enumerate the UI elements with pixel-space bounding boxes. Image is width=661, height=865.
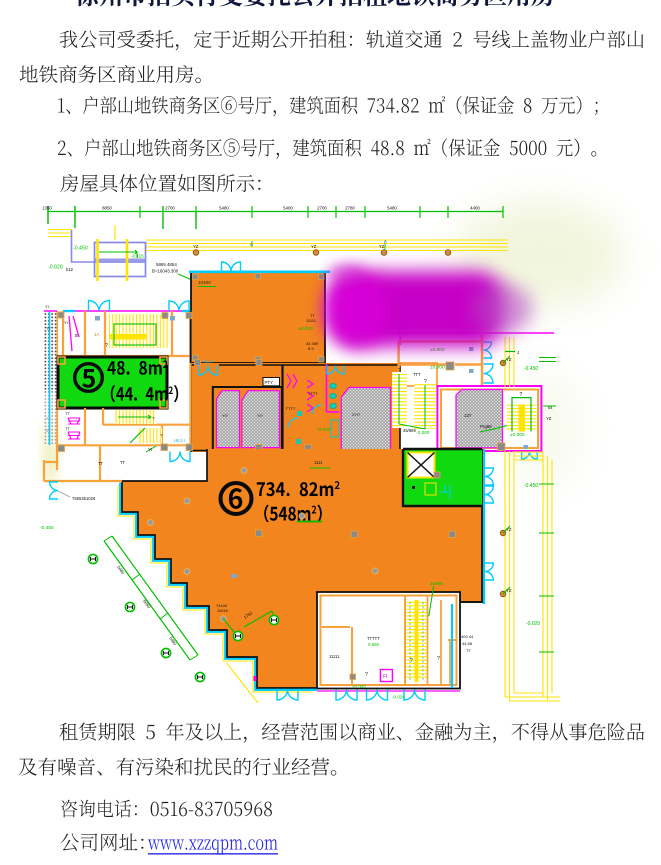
svg-text:45966: 45966: [430, 581, 443, 586]
svg-text:11111: 11111: [329, 654, 340, 659]
svg-text:5480: 5480: [116, 565, 126, 576]
svg-text:TT: TT: [466, 648, 471, 653]
svg-text:A: A: [384, 239, 387, 244]
svg-text:YI?: YI?: [222, 413, 229, 418]
svg-text:4400: 4400: [470, 206, 480, 211]
svg-text:8 9: 8 9: [308, 346, 314, 351]
svg-text:-0.450: -0.450: [524, 483, 538, 489]
svg-text:7555451026: 7555451026: [72, 496, 96, 501]
svg-text:±0.000: ±0.000: [298, 326, 313, 332]
svg-text:YI: YI: [64, 320, 68, 325]
svg-text:13?: 13?: [464, 413, 472, 418]
svg-text:2780: 2780: [345, 206, 355, 211]
svg-text:8850: 8850: [102, 206, 112, 211]
svg-text:11111: 11111: [306, 318, 317, 323]
svg-text:Prg88: Prg88: [480, 424, 492, 429]
svg-text:-0.115: -0.115: [131, 254, 144, 259]
svg-text:TTTTT: TTTTT: [367, 636, 380, 641]
svg-text:44 88: 44 88: [462, 641, 473, 646]
svg-text:1111: 1111: [314, 460, 323, 465]
svg-text:A: A: [250, 242, 253, 247]
svg-text:J: J: [517, 350, 519, 355]
svg-text:1A: 1A: [94, 332, 101, 337]
svg-text:-0.450: -0.450: [40, 525, 54, 531]
svg-text:?: ?: [365, 672, 368, 678]
svg-text:b12: b12: [66, 267, 74, 272]
svg-text:TT: TT: [46, 326, 51, 331]
svg-text:TTTT: TTTT: [308, 391, 318, 396]
svg-text:HEJ-I: HEJ-I: [174, 438, 185, 443]
svg-text:?: ?: [437, 656, 440, 662]
svg-text:45/869: 45/869: [403, 428, 416, 433]
svg-text:-2.200: -2.200: [416, 430, 430, 436]
svg-text:YZ: YZ: [546, 416, 552, 421]
svg-text:+0.000: +0.000: [352, 684, 366, 689]
svg-text:5865 4854: 5865 4854: [156, 262, 177, 267]
svg-text:?: ?: [520, 392, 523, 398]
svg-text:YI: YI: [45, 304, 49, 309]
svg-text:YZ: YZ: [193, 244, 199, 249]
svg-text:0.550: 0.550: [368, 642, 380, 647]
svg-text:TTT: TTT: [413, 372, 421, 377]
svg-text:±0.000: ±0.000: [430, 365, 445, 371]
svg-text:2YI?: 2YI?: [352, 412, 361, 417]
svg-text:-0.450: -0.450: [524, 366, 538, 372]
svg-text:8050: 8050: [142, 599, 152, 610]
svg-text:?: ?: [160, 433, 163, 438]
svg-text:?: ?: [424, 379, 427, 385]
svg-text:5480: 5480: [387, 206, 397, 211]
svg-text:B3: B3: [46, 428, 52, 433]
svg-text:-0.020: -0.020: [526, 621, 540, 627]
svg-text:10400: 10400: [198, 280, 211, 285]
svg-text:FI: FI: [383, 674, 387, 680]
svg-text:?: ?: [410, 658, 413, 664]
svg-text:?: ?: [105, 343, 108, 349]
svg-text:TT: TT: [65, 411, 70, 416]
svg-text:YI?: YI?: [257, 413, 264, 418]
svg-text:2700: 2700: [317, 206, 327, 211]
svg-text:?: ?: [398, 368, 401, 374]
svg-text:B=16043.300: B=16043.300: [152, 269, 179, 274]
svg-text:TT: TT: [65, 426, 70, 431]
svg-text:YI: YI: [148, 447, 152, 452]
svg-text:TT: TT: [98, 461, 104, 466]
svg-text:PTY: PTY: [265, 380, 273, 385]
svg-text:1350: 1350: [42, 206, 52, 211]
svg-text:5480: 5480: [168, 636, 178, 647]
svg-text:2700: 2700: [165, 206, 175, 211]
svg-text:A3: A3: [46, 416, 52, 421]
svg-text:-0.450: -0.450: [73, 246, 88, 252]
svg-text:±0.000: ±0.000: [510, 432, 525, 438]
svg-text:HEJ-I: HEJ-I: [203, 359, 213, 364]
svg-text:YZ: YZ: [379, 244, 385, 249]
svg-text:5480: 5480: [219, 206, 229, 211]
svg-text:-0.020: -0.020: [317, 427, 331, 433]
svg-text:400 44: 400 44: [461, 634, 474, 639]
svg-text:-0.020: -0.020: [48, 265, 63, 271]
svg-text:TT: TT: [120, 460, 126, 465]
svg-text:5400: 5400: [283, 206, 293, 211]
svg-text:B': B': [75, 333, 79, 338]
svg-text:?: ?: [152, 416, 155, 421]
svg-text:TTTT: TTTT: [286, 406, 296, 411]
svg-text:YZ: YZ: [311, 244, 317, 249]
svg-text:64: 64: [548, 405, 553, 410]
svg-text:11016: 11016: [217, 608, 229, 613]
svg-text:±0.000: ±0.000: [430, 347, 445, 353]
